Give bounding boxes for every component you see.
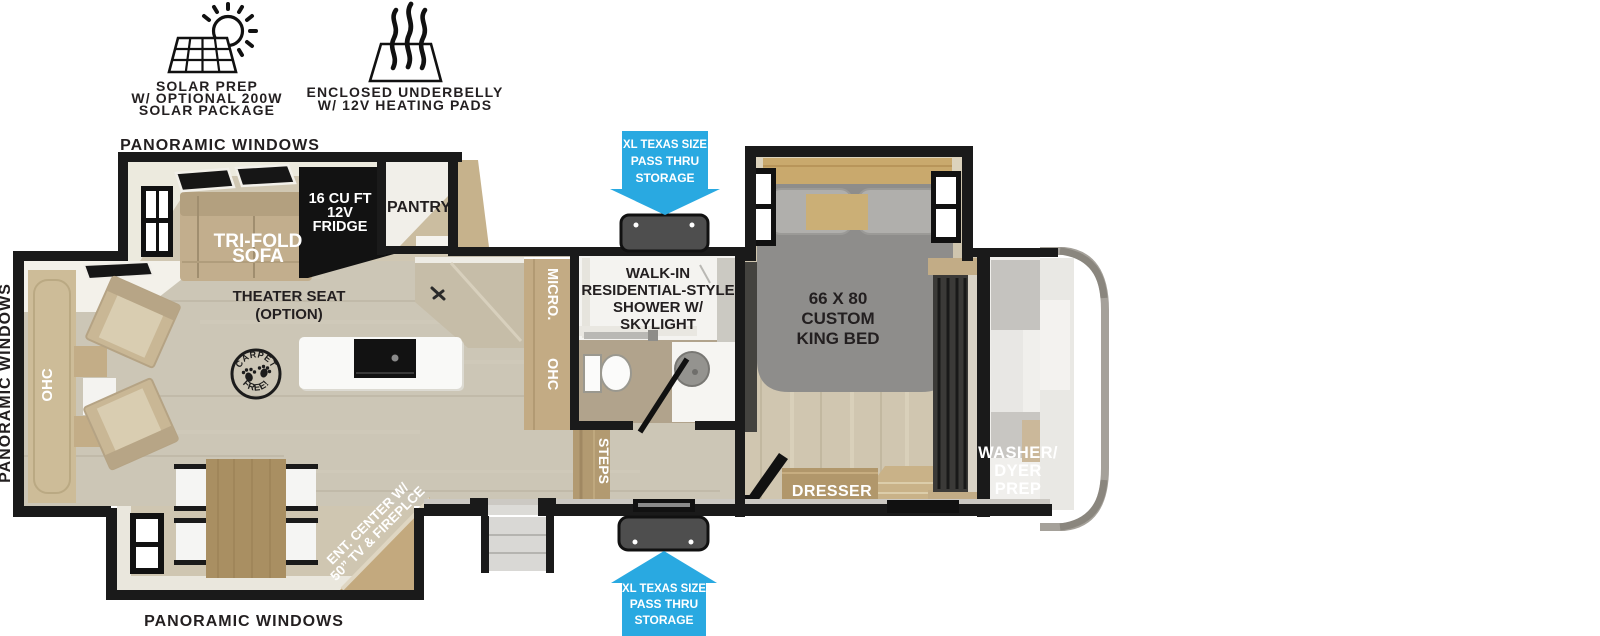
svg-text:THEATER SEAT: THEATER SEAT	[233, 288, 346, 305]
svg-text:PASS THRU: PASS THRU	[631, 154, 699, 168]
svg-text:SOLAR PACKAGE: SOLAR PACKAGE	[139, 102, 275, 118]
svg-text:STORAGE: STORAGE	[635, 171, 694, 185]
svg-text:OHC: OHC	[544, 358, 560, 391]
svg-text:PANORAMIC WINDOWS: PANORAMIC WINDOWS	[120, 137, 320, 154]
svg-text:SHOWER W/: SHOWER W/	[613, 299, 704, 316]
svg-text:CUSTOM: CUSTOM	[801, 309, 874, 328]
svg-text:STEPS: STEPS	[596, 438, 612, 484]
svg-text:DYER: DYER	[994, 462, 1041, 480]
svg-text:PANORAMIC WINDOWS: PANORAMIC WINDOWS	[0, 283, 14, 483]
svg-text:SKYLIGHT: SKYLIGHT	[620, 316, 696, 333]
svg-text:MICRO.: MICRO.	[544, 268, 560, 320]
svg-text:XL TEXAS SIZE: XL TEXAS SIZE	[622, 581, 706, 595]
svg-text:FRIDGE: FRIDGE	[313, 219, 368, 235]
svg-text:(OPTION): (OPTION)	[255, 306, 323, 323]
svg-text:RESIDENTIAL-STYLE: RESIDENTIAL-STYLE	[581, 282, 734, 299]
svg-text:WASHER/: WASHER/	[978, 444, 1058, 462]
svg-text:W/ 12V HEATING PADS: W/ 12V HEATING PADS	[318, 97, 492, 113]
svg-text:SOFA: SOFA	[232, 246, 284, 267]
svg-text:WALK-IN: WALK-IN	[626, 265, 690, 282]
svg-text:KING BED: KING BED	[796, 329, 879, 348]
svg-text:PANTRY: PANTRY	[387, 199, 451, 216]
svg-text:PANORAMIC WINDOWS: PANORAMIC WINDOWS	[144, 613, 344, 630]
svg-text:OHC: OHC	[39, 368, 56, 402]
svg-text:66 X 80: 66 X 80	[809, 289, 868, 308]
svg-text:XL TEXAS SIZE: XL TEXAS SIZE	[623, 137, 707, 151]
svg-text:STORAGE: STORAGE	[634, 613, 693, 627]
svg-text:DRESSER: DRESSER	[792, 483, 872, 500]
svg-text:PASS THRU: PASS THRU	[630, 597, 698, 611]
svg-text:PREP: PREP	[995, 480, 1042, 498]
